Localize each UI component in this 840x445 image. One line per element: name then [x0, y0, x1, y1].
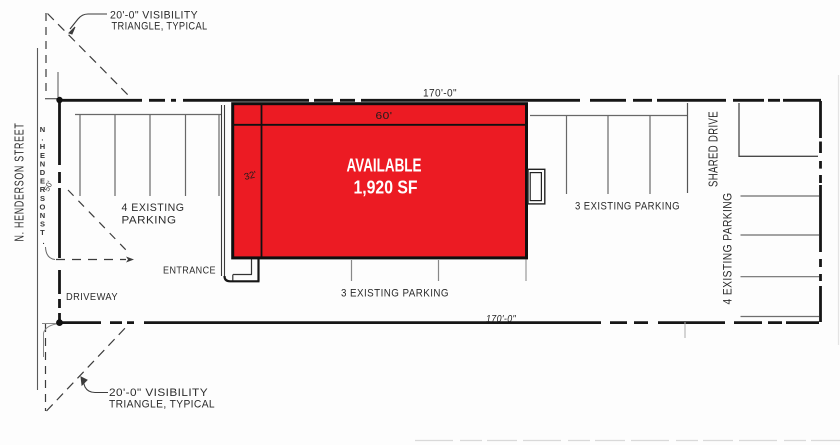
svg-text:170'-0": 170'-0" [486, 314, 516, 325]
svg-text:PARKING: PARKING [122, 215, 177, 227]
svg-text:60': 60' [376, 111, 393, 122]
svg-text:3 EXISTING PARKING: 3 EXISTING PARKING [575, 201, 680, 213]
svg-text:4 EXISTING: 4 EXISTING [122, 202, 185, 214]
svg-text:20'-0" VISIBILITY: 20'-0" VISIBILITY [109, 387, 208, 399]
svg-text:TRIANGLE, TYPICAL: TRIANGLE, TYPICAL [109, 399, 215, 411]
svg-text:3 EXISTING PARKING: 3 EXISTING PARKING [341, 288, 449, 300]
svg-text:ENTRANCE: ENTRANCE [163, 265, 216, 277]
svg-text:DRIVEWAY: DRIVEWAY [66, 291, 118, 303]
svg-text:170'-0": 170'-0" [423, 88, 457, 100]
svg-text:AVAILABLE: AVAILABLE [347, 155, 422, 176]
svg-text:4 EXISTING PARKING: 4 EXISTING PARKING [721, 193, 735, 305]
svg-text:TRIANGLE, TYPICAL: TRIANGLE, TYPICAL [112, 20, 208, 32]
svg-text:SHARED DRIVE: SHARED DRIVE [707, 111, 721, 187]
svg-text:N. HENDERSON STREET: N. HENDERSON STREET [13, 123, 27, 242]
svg-text:1,920 SF: 1,920 SF [354, 177, 418, 198]
